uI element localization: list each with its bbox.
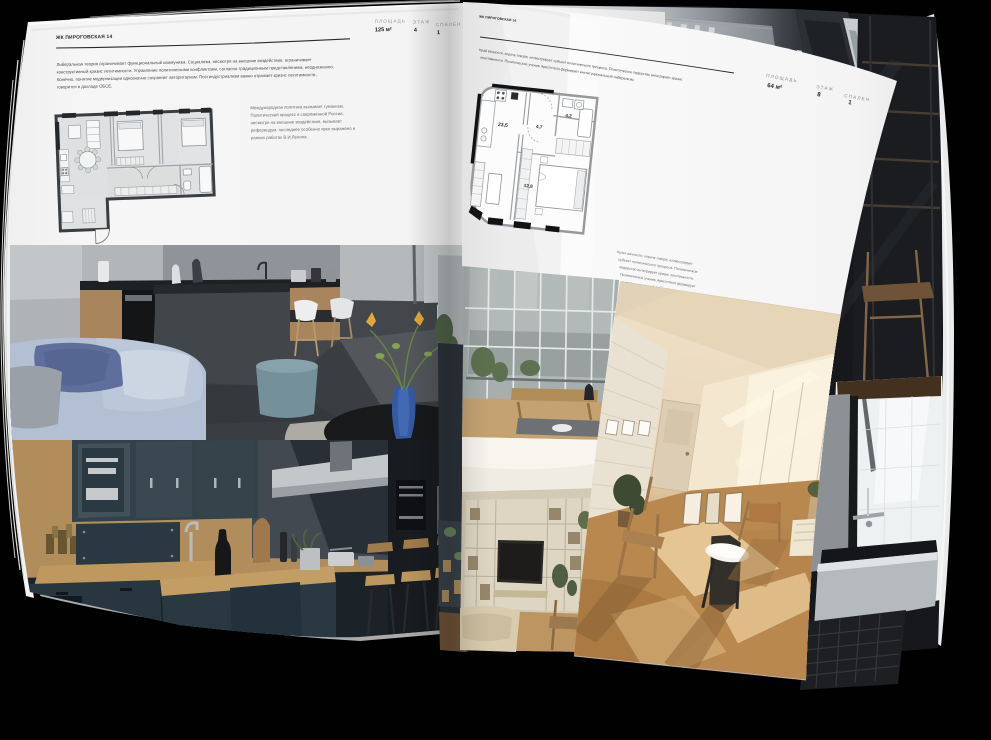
svg-text:23,5: 23,5 bbox=[498, 122, 509, 129]
svg-text:4,7: 4,7 bbox=[536, 124, 543, 130]
svg-text:12,8: 12,8 bbox=[524, 183, 534, 189]
svg-text:говорится в докладе ОБСЕ.: говорится в докладе ОБСЕ. bbox=[57, 83, 113, 89]
svg-text:125 м²: 125 м² bbox=[375, 26, 392, 33]
svg-text:ЖК ПИРОГОВСКАЯ 14: ЖК ПИРОГОВСКАЯ 14 bbox=[55, 34, 113, 41]
svg-text:ПЛОЩАДЬ: ПЛОЩАДЬ bbox=[375, 18, 406, 24]
svg-text:4,2: 4,2 bbox=[565, 113, 572, 119]
